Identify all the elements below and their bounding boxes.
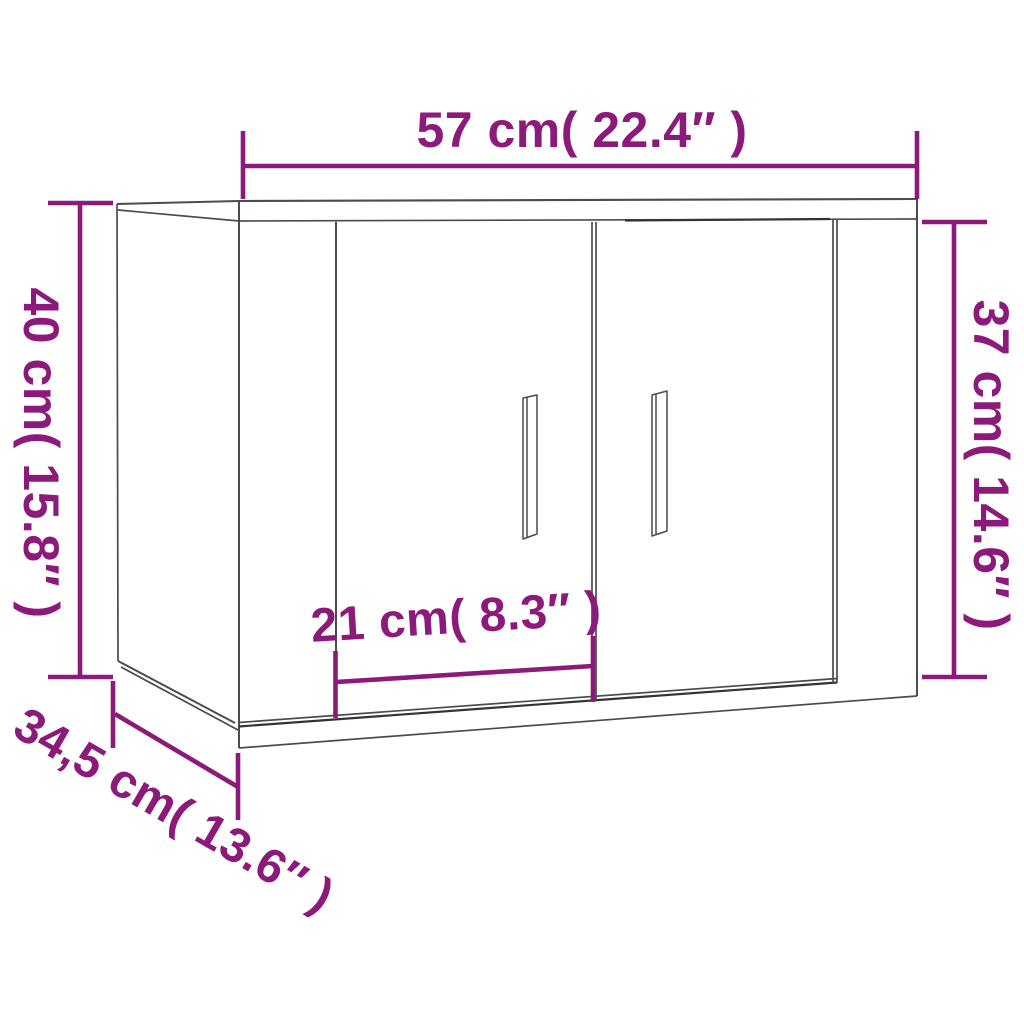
cabinet-dimension-diagram: 57 cm( 22.4″ ) 40 cm( 15.8″ ) 37 cm( 14.… <box>0 0 1024 1024</box>
dimension-diagram-page: 57 cm( 22.4″ ) 40 cm( 15.8″ ) 37 cm( 14.… <box>0 0 1024 1024</box>
dim-right-height-label: 37 cm( 14.6″ ) <box>963 299 1019 630</box>
cabinet-top-band-shade <box>625 219 830 221</box>
dim-width-label: 57 cm( 22.4″ ) <box>416 102 747 158</box>
dim-left-height-label: 40 cm( 15.8″ ) <box>13 287 69 618</box>
cabinet-left-back-edge <box>117 204 118 661</box>
